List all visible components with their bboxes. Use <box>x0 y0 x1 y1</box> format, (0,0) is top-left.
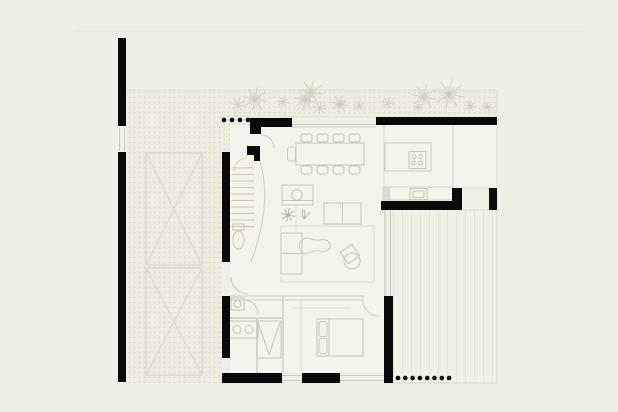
entry-columns-column <box>222 118 227 123</box>
cooktop-burner-4 <box>419 161 423 165</box>
wall-left-wall-upper <box>118 38 126 126</box>
dining-chair-3 <box>333 134 344 142</box>
sink-inner <box>413 191 424 198</box>
floor-plan <box>0 0 618 412</box>
floor-plan-drawing <box>0 0 618 412</box>
terrace-columns-column <box>440 376 445 381</box>
terrace-columns-column <box>396 376 401 381</box>
shower-fall-2 <box>269 322 280 355</box>
bedroom-partition <box>230 296 363 300</box>
wall-kitchen-south-stub <box>452 188 462 202</box>
wall-south-wall-a <box>222 373 282 383</box>
vanity-sink-1 <box>233 326 241 334</box>
cooktop-frame <box>409 152 426 169</box>
cooktop-burner-1 <box>412 155 416 159</box>
dining-chair-7 <box>333 166 344 174</box>
kitchen-cabinet <box>383 187 390 200</box>
entry-door-arc <box>261 135 274 148</box>
stair-curved-wall <box>251 158 265 262</box>
kitchen-island <box>385 143 431 171</box>
wall-left-wall-lower <box>118 152 126 382</box>
hall-door-arc <box>231 277 248 294</box>
wall-entry-pier-b <box>254 146 260 161</box>
armchair-back <box>340 244 359 263</box>
dining-chair-8 <box>349 166 360 174</box>
wall-store-stub <box>489 188 497 210</box>
entry-side-arc <box>234 158 247 171</box>
wall-bedroom-east-wall <box>384 296 393 383</box>
rug-blob <box>299 238 330 253</box>
dining-chair-5 <box>301 166 312 174</box>
terrace-columns-column <box>447 376 452 381</box>
terrace-columns-column <box>425 376 430 381</box>
dining-chair-1 <box>301 134 312 142</box>
shower-fall-1 <box>258 322 269 355</box>
wall-north-wall-kitchen <box>376 117 497 125</box>
dining-chair-4 <box>349 134 360 142</box>
terrace-columns-column <box>432 376 437 381</box>
entry-columns-column <box>230 118 235 123</box>
wall-entry-wall-stub <box>250 118 261 134</box>
terrace-columns-column <box>410 376 415 381</box>
wall-hall-wall-lower <box>222 296 230 358</box>
cooktop-burner-2 <box>419 155 423 159</box>
entry-columns-column <box>246 118 251 123</box>
bath-door-arc <box>244 300 258 314</box>
bedroom-door-arc <box>363 300 379 316</box>
wall-south-wall-b <box>302 373 340 383</box>
powder-toilet-bowl <box>233 231 244 249</box>
wall-kitchen-south-wall <box>381 201 462 210</box>
bed-pillow-1 <box>319 322 327 337</box>
plant-sprout <box>302 210 310 219</box>
entry-columns-column <box>238 118 243 123</box>
dining-chair-2 <box>317 134 328 142</box>
console-bowl <box>292 190 302 200</box>
dining-chair-6 <box>317 166 328 174</box>
bed-pillow-2 <box>319 339 327 354</box>
terrace-columns-column <box>403 376 408 381</box>
cooktop-burner-3 <box>412 161 416 165</box>
bed-frame <box>317 319 363 356</box>
console-table <box>282 185 313 205</box>
wall-hall-wall-upper <box>222 152 230 262</box>
vanity-sink-2 <box>245 326 253 334</box>
dining-table <box>296 143 364 165</box>
terrace-columns-column <box>418 376 423 381</box>
bath-toilet-bowl <box>234 301 241 308</box>
shower-tray <box>257 321 281 358</box>
dining-chair-end <box>288 147 296 161</box>
